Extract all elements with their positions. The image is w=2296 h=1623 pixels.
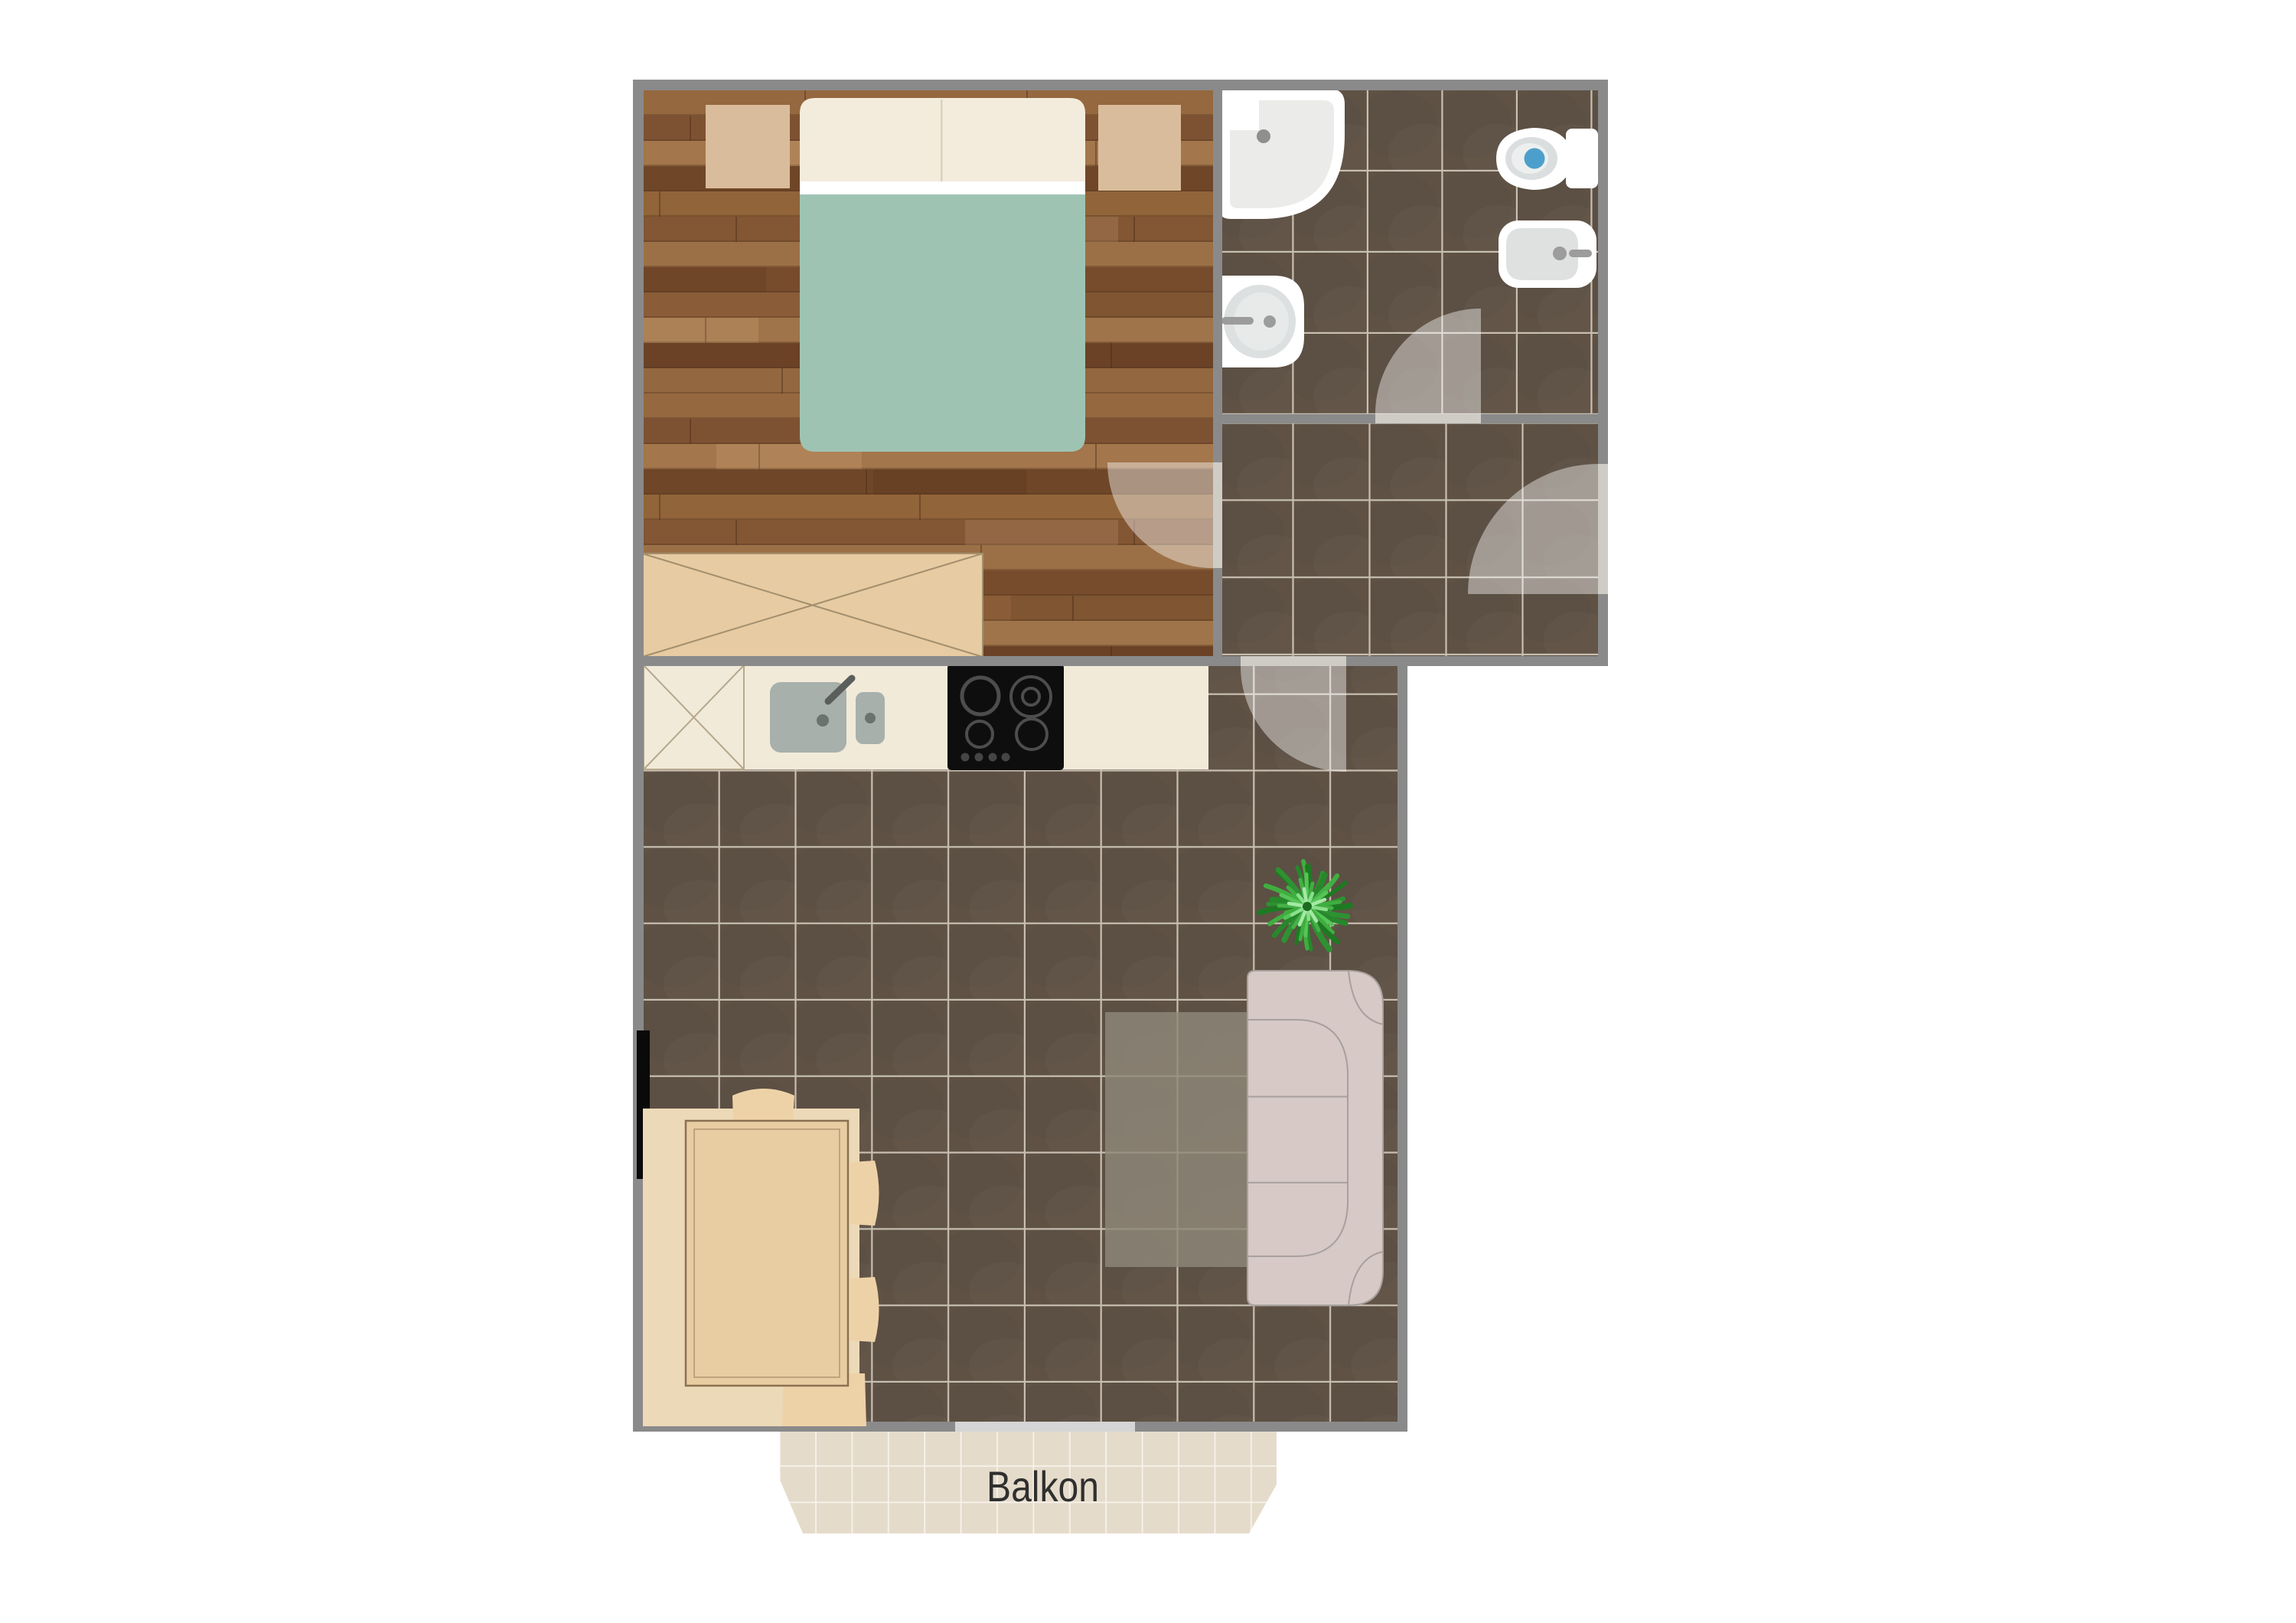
- svg-text:Balkon: Balkon: [987, 1462, 1099, 1510]
